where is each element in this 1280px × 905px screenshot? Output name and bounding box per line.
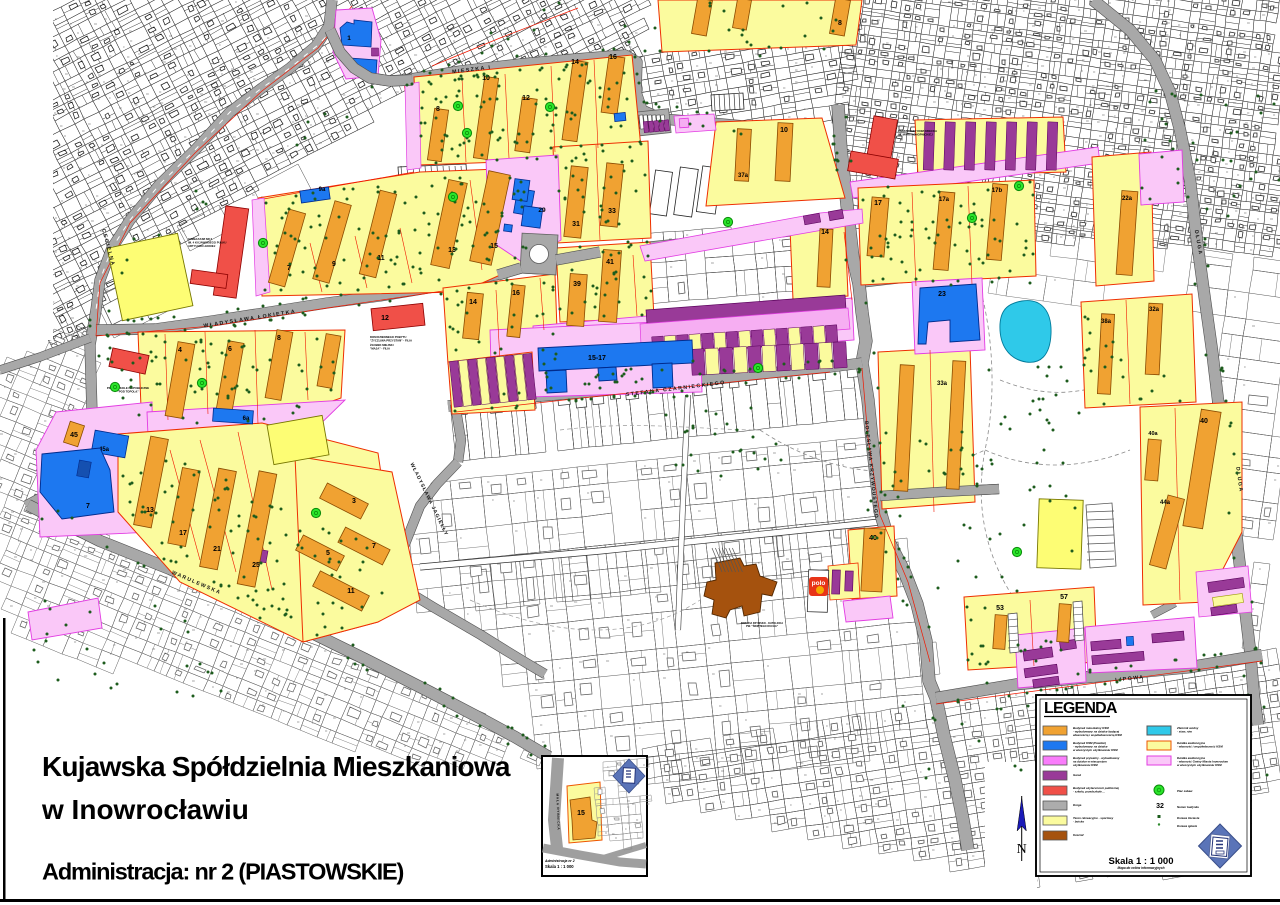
svg-text:14: 14 [821,229,829,236]
svg-text:ARTYLERII LEKKIEJ: ARTYLERII LEKKIEJ [188,244,216,248]
svg-text:8: 8 [838,20,842,27]
svg-text:- własność i współwłasność KSM: - własność i współwłasność KSM [1177,744,1223,748]
svg-text:37a: 37a [738,173,749,179]
svg-text:31: 31 [572,221,580,228]
svg-text:12: 12 [381,315,389,322]
svg-text:22a: 22a [1122,196,1133,202]
svg-text:45: 45 [70,432,78,439]
svg-text:29: 29 [538,207,546,214]
svg-text:Mapa do celów informacyjnych: Mapa do celów informacyjnych [1117,866,1164,870]
svg-text:Plac zabaw: Plac zabaw [1177,789,1193,793]
svg-text:32a: 32a [1149,307,1160,313]
svg-text:16: 16 [512,290,520,297]
svg-text:7: 7 [86,503,90,510]
svg-text:Skala 1 : 1 000: Skala 1 : 1 000 [545,864,574,869]
svg-text:17b: 17b [992,188,1003,194]
svg-text:1: 1 [347,35,351,42]
svg-text:8: 8 [277,335,281,342]
svg-text:Administracja: nr 2 (PIASTOWSK: Administracja: nr 2 (PIASTOWSKIE) [42,859,404,885]
svg-text:9: 9 [332,261,336,268]
svg-text:33: 33 [608,208,616,215]
svg-text:Garaż: Garaż [1073,773,1082,777]
svg-text:użytkowaniu KSM: użytkowaniu KSM [1073,763,1098,767]
svg-text:14: 14 [469,299,477,306]
svg-text:40: 40 [1200,418,1208,425]
svg-text:7: 7 [372,543,376,550]
svg-text:w wieczystym użytkowaniu KSM: w wieczystym użytkowaniu KSM [1177,763,1222,767]
svg-text:Kościół: Kościół [1073,833,1084,837]
svg-text:25: 25 [252,562,260,569]
svg-text:21: 21 [213,546,221,553]
svg-text:12: 12 [522,95,530,102]
svg-text:- szkoła, przedszkole ...: - szkoła, przedszkole ... [1073,789,1105,793]
svg-text:53: 53 [996,605,1004,612]
svg-text:13: 13 [146,507,154,514]
svg-text:16: 16 [609,54,617,61]
svg-text:N: N [1017,842,1027,857]
svg-text:w wieczystym użytkowaniu KSM: w wieczystym użytkowaniu KSM [1073,748,1118,752]
svg-text:17a: 17a [939,197,950,203]
svg-text:11: 11 [347,588,355,595]
svg-text:- boisko: - boisko [1073,819,1084,823]
svg-text:10: 10 [780,127,788,134]
svg-text:Kujawska Spółdzielnia Mieszkan: Kujawska Spółdzielnia Mieszkaniowa [42,751,511,782]
svg-text:3: 3 [352,498,356,505]
svg-text:17: 17 [874,200,882,207]
svg-text:6: 6 [228,346,232,353]
svg-text:- staw, rów: - staw, rów [1177,729,1193,733]
svg-text:w Inowrocławiu: w Inowrocławiu [41,794,249,825]
svg-text:IM. MARII KONOPNICKIEJ: IM. MARII KONOPNICKIEJ [898,132,933,136]
svg-text:"POD TOPOLĄ": "POD TOPOLĄ" [117,389,139,393]
svg-text:23: 23 [938,291,946,298]
svg-text:8: 8 [436,106,440,113]
svg-text:57: 57 [1060,594,1068,601]
svg-text:4: 4 [178,347,182,354]
svg-text:Drzewa liściaste: Drzewa liściaste [1177,816,1200,820]
svg-text:Droga: Droga [1073,803,1082,807]
svg-text:Drzewa iglaste: Drzewa iglaste [1177,824,1197,828]
svg-text:7: 7 [287,265,291,272]
svg-text:38a: 38a [1101,319,1112,325]
svg-text:LEGENDA: LEGENDA [1044,700,1118,717]
svg-text:5: 5 [326,550,330,557]
svg-text:39: 39 [573,281,581,288]
svg-text:17: 17 [179,530,187,537]
svg-text:9a: 9a [319,187,326,193]
svg-text:Administracja nr 2: Administracja nr 2 [544,859,575,863]
svg-text:40a: 40a [1148,431,1158,437]
svg-text:44a: 44a [1160,500,1171,506]
svg-text:własnością i współwłasnością K: własnością i współwłasnością KSM [1073,733,1122,737]
svg-text:41: 41 [606,259,614,266]
svg-text:"ŻYCZLIWA PRZYSTAŃ" - FILIA: "ŻYCZLIWA PRZYSTAŃ" - FILIA [370,337,412,342]
svg-text:Numer budynku: Numer budynku [1177,805,1199,809]
svg-text:"MAJA" - FILIA: "MAJA" - FILIA [370,346,390,350]
svg-text:32: 32 [1156,803,1164,810]
svg-text:15-17: 15-17 [588,355,606,362]
svg-text:14: 14 [571,59,579,66]
svg-text:15: 15 [577,810,585,817]
svg-text:33a: 33a [937,381,948,387]
